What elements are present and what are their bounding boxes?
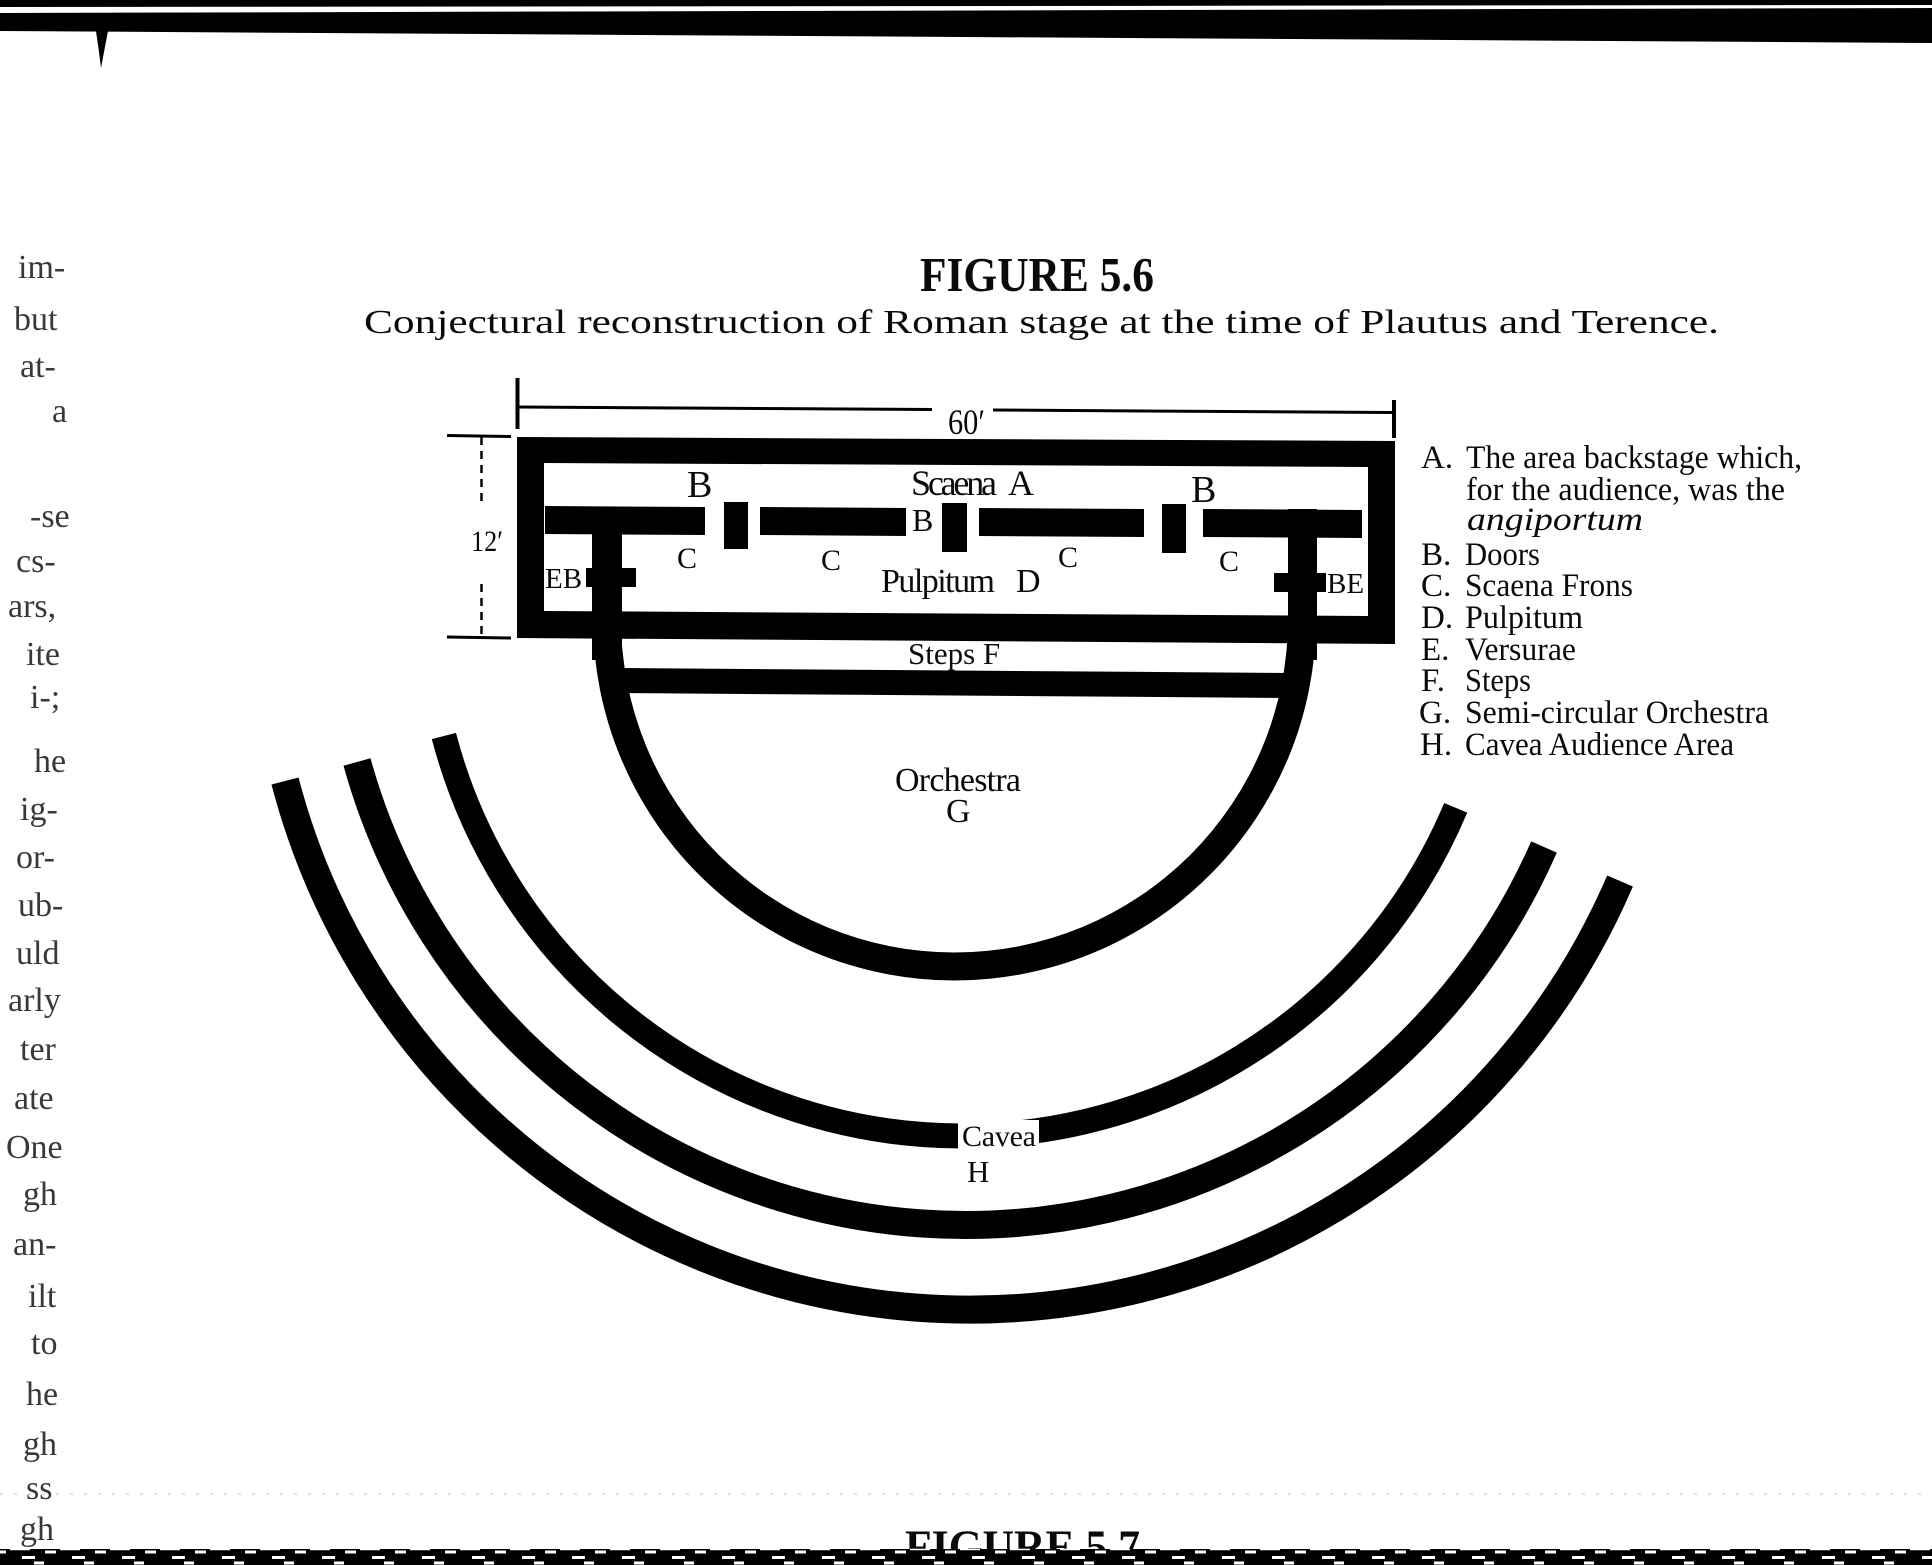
svg-text:A.: A.: [1421, 440, 1453, 476]
svg-text:-se: -se: [30, 498, 70, 535]
svg-text:H: H: [967, 1154, 989, 1189]
svg-text:Pulpitum: Pulpitum: [1465, 600, 1583, 636]
svg-text:he: he: [26, 1376, 58, 1413]
svg-text:i-;: i-;: [30, 679, 60, 716]
svg-text:D: D: [1016, 563, 1041, 600]
svg-text:or-: or-: [16, 839, 55, 876]
svg-text:a: a: [52, 393, 67, 430]
svg-text:but: but: [14, 301, 58, 338]
svg-text:im-: im-: [18, 249, 65, 286]
svg-text:H.: H.: [1420, 727, 1452, 763]
svg-text:ars,: ars,: [8, 588, 56, 625]
svg-text:C: C: [677, 542, 697, 575]
svg-text:C.: C.: [1421, 568, 1451, 604]
svg-text:C: C: [821, 544, 841, 577]
svg-text:ter: ter: [20, 1031, 57, 1068]
svg-text:Semi-circular Orchestra: Semi-circular Orchestra: [1465, 695, 1769, 731]
svg-text:gh: gh: [20, 1511, 54, 1548]
svg-text:B: B: [687, 464, 712, 506]
svg-text:12′: 12′: [471, 525, 503, 558]
svg-text:gh: gh: [23, 1426, 57, 1463]
svg-text:ilt: ilt: [28, 1278, 57, 1315]
svg-text:angiportum: angiportum: [1467, 502, 1643, 538]
svg-text:B: B: [1191, 469, 1216, 511]
svg-text:F.: F.: [1421, 663, 1445, 699]
svg-text:uld: uld: [16, 935, 59, 972]
svg-text:he: he: [34, 743, 66, 780]
svg-text:at-: at-: [20, 348, 56, 385]
svg-text:Pulpitum: Pulpitum: [881, 563, 995, 600]
svg-text:Cavea: Cavea: [962, 1120, 1036, 1153]
svg-text:ig-: ig-: [20, 791, 58, 828]
svg-text:ub-: ub-: [18, 887, 63, 924]
svg-text:D.: D.: [1421, 600, 1453, 636]
svg-text:G.: G.: [1419, 695, 1451, 731]
svg-text:Cavea Audience Area: Cavea Audience Area: [1465, 727, 1734, 763]
svg-text:G: G: [946, 793, 971, 830]
svg-text:Steps: Steps: [1465, 663, 1531, 699]
svg-text:C: C: [1058, 541, 1078, 574]
svg-text:One: One: [6, 1129, 63, 1166]
svg-text:Steps F: Steps F: [908, 636, 1000, 671]
svg-text:an-: an-: [13, 1226, 56, 1263]
svg-text:ate: ate: [14, 1080, 54, 1117]
svg-text:to: to: [31, 1325, 57, 1362]
svg-text:The area backstage which,: The area backstage which,: [1466, 440, 1802, 476]
svg-text:arly: arly: [8, 982, 61, 1019]
svg-text:FIGURE 5.6: FIGURE 5.6: [920, 247, 1154, 302]
svg-text:EB: EB: [545, 563, 582, 595]
svg-text:BE: BE: [1327, 568, 1364, 600]
svg-text:gh: gh: [23, 1176, 57, 1213]
svg-text:60′: 60′: [948, 402, 985, 442]
svg-text:Scaena Frons: Scaena Frons: [1465, 568, 1633, 604]
svg-text:Conjectural reconstruction of: Conjectural reconstruction of Roman stag…: [364, 304, 1719, 341]
svg-text:C: C: [1219, 545, 1239, 578]
svg-text:Scaena: Scaena: [911, 463, 997, 503]
svg-text:ite: ite: [26, 636, 60, 673]
svg-text:B: B: [912, 502, 933, 538]
svg-text:ss: ss: [26, 1470, 52, 1507]
svg-text:A: A: [1008, 463, 1034, 503]
svg-text:cs-: cs-: [16, 543, 56, 580]
